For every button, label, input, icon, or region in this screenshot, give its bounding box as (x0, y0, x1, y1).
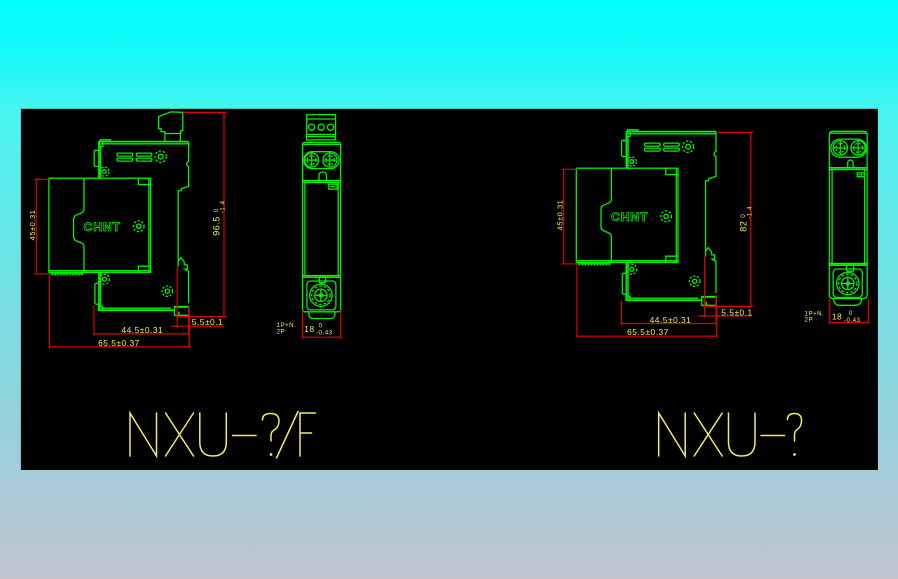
svg-text:96.5: 96.5 (212, 216, 222, 236)
svg-text:-1.4: -1.4 (747, 206, 754, 219)
svg-text:44.5±0.31: 44.5±0.31 (121, 325, 163, 335)
svg-text:45±0.31: 45±0.31 (28, 210, 37, 241)
svg-text:-0.43: -0.43 (844, 317, 861, 324)
svg-text:2P: 2P (805, 317, 814, 324)
svg-text:2P: 2P (277, 328, 286, 335)
svg-text:65.5±0.37: 65.5±0.37 (98, 338, 140, 348)
svg-text:18: 18 (832, 311, 842, 321)
svg-text:0: 0 (319, 323, 323, 330)
svg-text:18: 18 (304, 324, 314, 334)
svg-text:44.5±0.31: 44.5±0.31 (650, 315, 692, 325)
svg-text:5.5±0.1: 5.5±0.1 (192, 317, 223, 327)
svg-text:-0.43: -0.43 (316, 330, 333, 337)
svg-text:5.5±0.1: 5.5±0.1 (721, 308, 752, 318)
svg-text:82: 82 (739, 221, 749, 232)
svg-text:-1.4: -1.4 (220, 200, 227, 213)
svg-text:0: 0 (849, 310, 853, 317)
svg-text:65.5±0.37: 65.5±0.37 (627, 327, 669, 337)
svg-text:45±0.31: 45±0.31 (555, 200, 564, 231)
